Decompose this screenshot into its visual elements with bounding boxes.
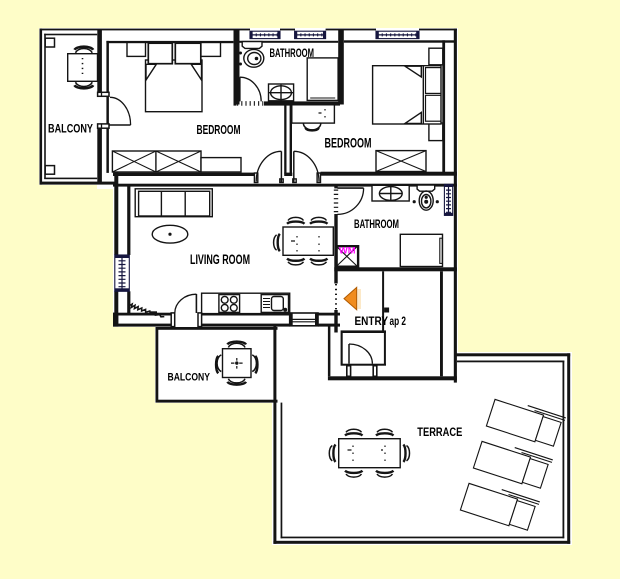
svg-text:BEDROOM: BEDROOM [197, 123, 241, 137]
svg-text:BALCONY: BALCONY [168, 372, 211, 384]
svg-text:ENTRY: ENTRY [355, 316, 389, 328]
svg-text:BATHROOM: BATHROOM [270, 46, 315, 60]
svg-text:WM: WM [339, 246, 356, 257]
svg-text:BATHROOM: BATHROOM [354, 219, 399, 231]
svg-text:TERRACE: TERRACE [417, 427, 462, 439]
svg-text:BALCONY: BALCONY [48, 122, 93, 136]
svg-text:ap 2: ap 2 [390, 316, 407, 328]
svg-text:BEDROOM: BEDROOM [325, 135, 372, 150]
svg-text:LIVING ROOM: LIVING ROOM [190, 252, 250, 267]
